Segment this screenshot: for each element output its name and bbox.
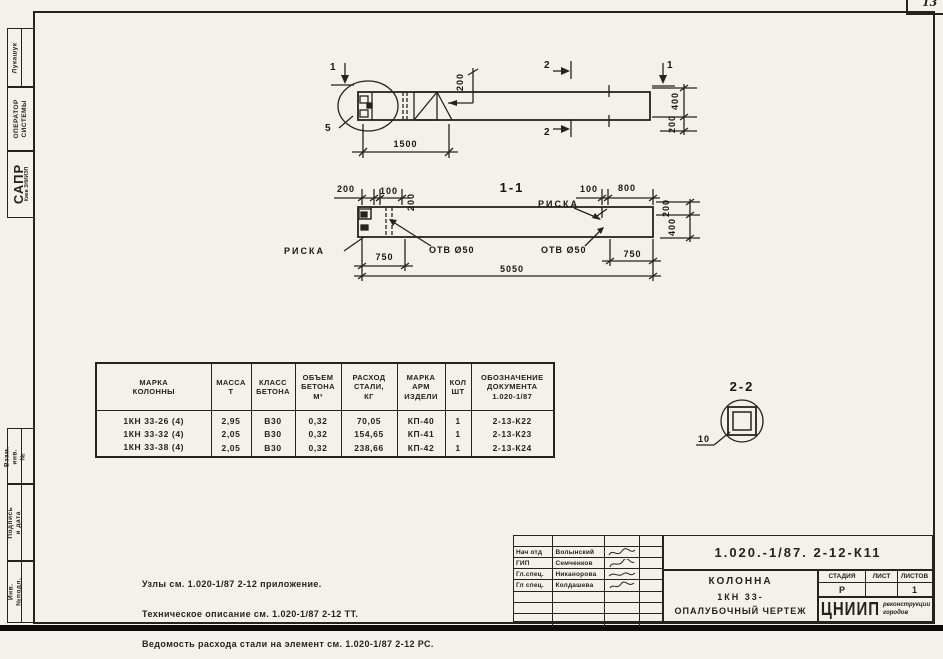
signature-squiggle xyxy=(607,581,637,590)
sheet-label: ЛИСТ xyxy=(866,571,898,582)
sign-row-empty xyxy=(514,614,662,627)
object-line2: 1КН 33- xyxy=(717,592,764,602)
header-rashod: РАСХОД СТАЛИ, КГ xyxy=(341,363,397,411)
org-label: САПРКиев ЗНИИЭП xyxy=(12,164,30,204)
vzam-label: Взам. инв. № xyxy=(3,446,26,467)
signature xyxy=(605,580,641,591)
riska-label: РИСКА xyxy=(538,199,579,209)
stage-sheet-box: СТАДИЯ ЛИСТ ЛИСТОВ Р 1 xyxy=(818,570,933,597)
signature-squiggle xyxy=(607,570,637,579)
cell-klass: В30 xyxy=(251,440,295,457)
object-line3: ОПАЛУБОЧНЫЙ ЧЕРТЕЖ xyxy=(675,606,807,616)
sheet-frame xyxy=(33,11,935,624)
cell-marka: 1КН 33-38 (4) xyxy=(96,440,211,457)
sign-row: Гл.спец. Никанорова xyxy=(514,569,662,580)
signature-squiggle xyxy=(607,548,637,557)
inv-label: Инв. №подл. xyxy=(7,577,23,605)
dim-750: 750 xyxy=(615,249,650,259)
column-spec-table: МАРКА КОЛОННЫ МАССА Т КЛАСС БЕТОНА ОБЪЕМ… xyxy=(95,362,555,458)
cell-kol: 1 xyxy=(445,411,471,428)
cell-marka: 1КН 33-32 (4) xyxy=(96,427,211,440)
signer-role: Нач отд xyxy=(514,547,553,557)
cell-rashod: 154,65 xyxy=(341,427,397,440)
header-massa: МАССА Т xyxy=(211,363,251,411)
signature xyxy=(605,558,641,568)
signer-role: Гл.спец. xyxy=(514,569,553,579)
sidebar-stamp-vzam: Взам. инв. № xyxy=(7,428,35,485)
cell-rashod: 238,66 xyxy=(341,440,397,457)
riska-label: РИСКА xyxy=(284,246,325,256)
dim-5050: 5050 xyxy=(492,264,532,274)
header-kol: КОЛ ШТ xyxy=(445,363,471,411)
note-line: Узлы см. 1.020-1/87 2-12 приложение. xyxy=(142,579,434,589)
table-row: 1КН 33-38 (4) 2,05 В30 0,32 238,66 КП-42… xyxy=(96,440,554,457)
signer-name: Семченков xyxy=(553,558,604,568)
sidebar-stamp-org: САПРКиев ЗНИИЭП xyxy=(7,150,35,218)
signer-name: Колдашева xyxy=(553,580,604,591)
cell-rashod: 70,05 xyxy=(341,411,397,428)
cell-oboznach: 2-13-К23 xyxy=(471,427,554,440)
dim-200-offset: 200 xyxy=(455,67,465,97)
signature-squiggle xyxy=(607,559,637,568)
section-marker-2-label: 2 xyxy=(544,127,551,138)
signature xyxy=(605,569,641,579)
cell-klass: В30 xyxy=(251,427,295,440)
org-logo-box: ЦНИИП реконструкции городов xyxy=(818,597,933,622)
org-name: реконструкции городов xyxy=(883,602,930,616)
section-marker-1-label: 1 xyxy=(667,60,674,71)
section-marker-2-label: 2 xyxy=(544,60,551,71)
org-sub-label: Киев ЗНИИЭП xyxy=(25,164,30,204)
sign-row-empty xyxy=(514,536,662,547)
dim-800: 800 xyxy=(613,183,641,193)
stage-label: СТАДИЯ xyxy=(819,571,866,582)
org-abbr: ЦНИИП xyxy=(821,599,880,620)
dim-200: 200 xyxy=(334,184,358,194)
cell-oboznach: 2-13-К24 xyxy=(471,440,554,457)
sign-row-empty xyxy=(514,592,662,603)
header-arm: МАРКА АРМ ИЗДЕЛИ xyxy=(397,363,445,411)
dim-200-height: 200 xyxy=(667,109,677,139)
cell-obyem: 0,32 xyxy=(295,411,341,428)
cell-arm: КП-41 xyxy=(397,427,445,440)
header-oboznach: ОБОЗНАЧЕНИЕ ДОКУМЕНТА 1.020-1/87 xyxy=(471,363,554,411)
signer-name: Никанорова xyxy=(553,569,604,579)
signer-role: Гл спец. xyxy=(514,580,553,591)
cell-arm: КП-42 xyxy=(397,440,445,457)
stage-value: Р xyxy=(819,583,866,596)
wall-thickness-label: 10 xyxy=(698,434,710,444)
doc-number: 1.020.-1/87. 2-12-К11 xyxy=(714,545,881,560)
sidebar-stamp-sign-date: Подпись и дата xyxy=(7,483,35,562)
cell-kol: 1 xyxy=(445,427,471,440)
header-klass: КЛАСС БЕТОНА xyxy=(251,363,295,411)
cell-obyem: 0,32 xyxy=(295,440,341,457)
sign-row: ГИП Семченков xyxy=(514,558,662,569)
cell-arm: КП-40 xyxy=(397,411,445,428)
section-marker-1-label: 1 xyxy=(330,62,337,73)
sheet-value xyxy=(866,583,898,596)
cell-obyem: 0,32 xyxy=(295,427,341,440)
sign-row-empty xyxy=(514,603,662,614)
sign-date-label: Подпись и дата xyxy=(7,507,23,539)
object-line1: КОЛОННА xyxy=(708,576,772,587)
dim-400-side: 400 xyxy=(667,212,677,242)
sheets-label: ЛИСТОВ xyxy=(898,571,931,582)
cell-marka: 1КН 33-26 (4) xyxy=(96,411,211,428)
detail-ref-label: 5 xyxy=(325,123,332,134)
header-marka: МАРКА КОЛОННЫ xyxy=(96,363,211,411)
scanned-drawing-sheet: { "page_number": "13", "sidebar": { "aut… xyxy=(0,0,943,631)
sidebar-stamp-author: Лукашук xyxy=(7,28,35,88)
dim-100: 100 xyxy=(577,184,601,194)
page-number: 13 xyxy=(922,0,943,9)
hole-label: ОТВ Ø50 xyxy=(541,245,587,255)
page-number-box: 13 xyxy=(906,0,943,15)
section-2-2-title: 2-2 xyxy=(720,379,764,394)
cell-kol: 1 xyxy=(445,440,471,457)
object-name-box: КОЛОННА 1КН 33- ОПАЛУБОЧНЫЙ ЧЕРТЕЖ xyxy=(663,570,818,622)
section-1-1-title: 1-1 xyxy=(490,180,534,195)
dim-750: 750 xyxy=(367,252,402,262)
note-line: Техническое описание см. 1.020-1/87 2-12… xyxy=(142,609,434,619)
cell-massa: 2,05 xyxy=(211,440,251,457)
operator-label: ОПЕРАТОР СИСТЕМЫ xyxy=(13,99,29,138)
cell-massa: 2,95 xyxy=(211,411,251,428)
signature-table: Нач отд Волынский ГИП Семченков Гл.спец.… xyxy=(513,535,663,622)
notes-block: Узлы см. 1.020-1/87 2-12 приложение. Тех… xyxy=(142,559,434,659)
sheets-value: 1 xyxy=(898,583,931,596)
hole-label: ОТВ Ø50 xyxy=(429,245,475,255)
signer-role: ГИП xyxy=(514,558,553,568)
sidebar-stamp-operator: ОПЕРАТОР СИСТЕМЫ xyxy=(7,86,35,152)
cell-oboznach: 2-13-К22 xyxy=(471,411,554,428)
sign-row: Нач отд Волынский xyxy=(514,547,662,558)
signature xyxy=(605,547,641,557)
dim-100: 100 xyxy=(377,186,401,196)
table-row: 1КН 33-32 (4) 2,05 В30 0,32 154,65 КП-41… xyxy=(96,427,554,440)
dim-200-web: 200 xyxy=(406,187,416,217)
sidebar-stamp-inv: Инв. №подл. xyxy=(7,560,35,623)
table-header-row: МАРКА КОЛОННЫ МАССА Т КЛАСС БЕТОНА ОБЪЕМ… xyxy=(96,363,554,411)
author-name: Лукашук xyxy=(11,43,19,74)
signer-name: Волынский xyxy=(553,547,604,557)
dim-1500: 1500 xyxy=(383,139,428,149)
cell-massa: 2,05 xyxy=(211,427,251,440)
note-line: Ведомость расхода стали на элемент см. 1… xyxy=(142,639,434,649)
header-obyem: ОБЪЕМ БЕТОНА М³ xyxy=(295,363,341,411)
cell-klass: В30 xyxy=(251,411,295,428)
sign-row: Гл спец. Колдашева xyxy=(514,580,662,592)
doc-number-box: 1.020.-1/87. 2-12-К11 xyxy=(663,535,933,570)
table-row: 1КН 33-26 (4) 2,95 В30 0,32 70,05 КП-40 … xyxy=(96,411,554,428)
